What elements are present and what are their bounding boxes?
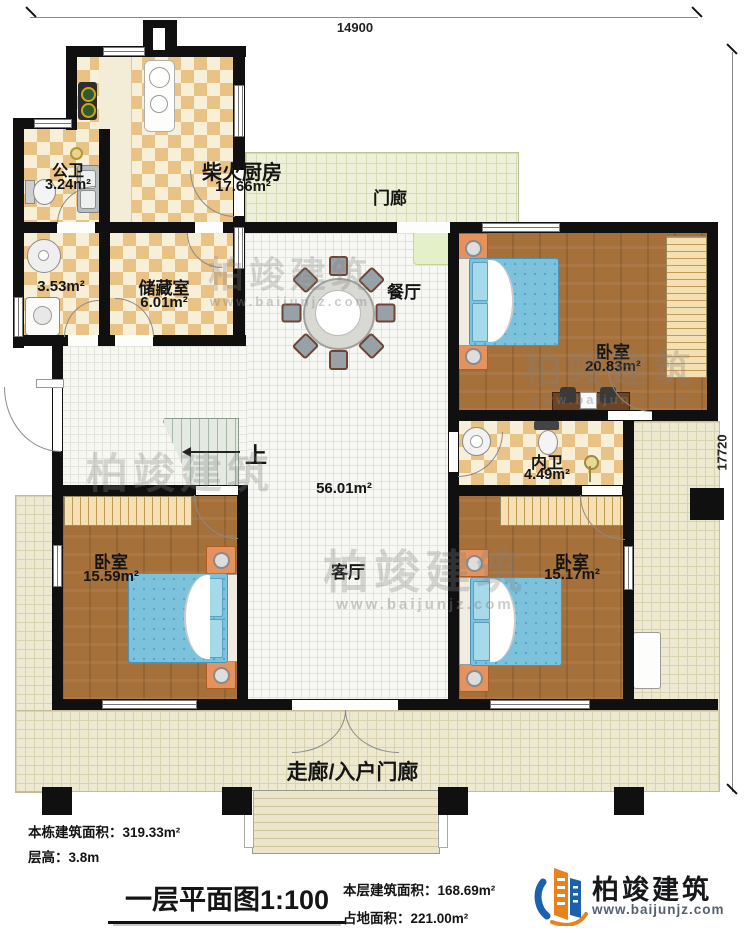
dimension-top-value: 14900 (320, 20, 390, 35)
floor-plan: 柴火厨房 17.66m² 公卫 3.24m² 3.53m² 储藏室 6.01m²… (0, 0, 750, 933)
wall (237, 485, 248, 710)
door-opening (582, 486, 622, 495)
dimension-right-value: 17720 (715, 423, 730, 483)
nightstand (459, 549, 489, 577)
window (482, 223, 560, 232)
area-living: 56.01m² (312, 480, 376, 497)
nightstand (206, 661, 236, 689)
nightstand (206, 546, 236, 574)
shower-stem (589, 466, 591, 482)
dining-chair (376, 304, 396, 323)
label-corridor: 走廊/入户门廊 (265, 756, 440, 786)
entrance-steps (252, 790, 440, 854)
floor-height: 层高：3.8m (28, 845, 180, 870)
wardrobe (64, 496, 192, 526)
window (34, 119, 72, 128)
wall (707, 222, 718, 421)
door-opening (608, 411, 652, 420)
burner (81, 103, 96, 118)
door-opening (292, 700, 398, 710)
pillow (473, 622, 490, 661)
stool (560, 387, 576, 403)
dimension-tick (691, 6, 702, 17)
window (490, 700, 590, 709)
door-opening (449, 432, 458, 472)
area-bedroom-br: 15.17m² (540, 566, 604, 583)
info-left: 本栋建筑面积：319.33m² 层高：3.8m (28, 820, 180, 870)
terrace-bench (633, 632, 661, 689)
area-kitchen: 17.66m² (205, 178, 281, 195)
brand-logo: 柏竣建筑 www.baijunjz.com (534, 862, 734, 928)
chimney-flue (153, 28, 165, 50)
window (14, 297, 23, 337)
entry-mat (413, 229, 451, 265)
window (234, 227, 244, 269)
dining-chair (282, 304, 302, 323)
column (438, 787, 468, 815)
pillow (472, 303, 488, 342)
label-dining: 餐厅 (380, 278, 428, 303)
toilet (534, 421, 559, 430)
info-right: 本层建筑面积：168.69m² 占地面积：221.00m² (343, 877, 495, 933)
burner (81, 87, 96, 102)
total-building-area: 本栋建筑面积：319.33m² (28, 820, 180, 845)
dimension-line-right (732, 52, 733, 792)
area-storage: 6.01m² (134, 294, 194, 311)
door-arc (4, 387, 61, 452)
nightstand (459, 664, 489, 692)
window (53, 545, 62, 587)
window (103, 47, 145, 56)
column (690, 488, 724, 520)
dining-table-top (315, 290, 361, 336)
dresser-mirror (580, 392, 597, 409)
brand-url: www.baijunjz.com (592, 902, 725, 917)
dimension-line-top (30, 17, 698, 18)
door-opening (196, 486, 238, 495)
floor-area: 本层建筑面积：168.69m² (343, 877, 495, 905)
shower-head (584, 455, 599, 470)
wok-ring (150, 95, 168, 113)
column (614, 787, 644, 815)
label-living: 客厅 (322, 558, 374, 583)
pillow (473, 581, 490, 620)
door-opening (397, 222, 450, 233)
pillow (472, 262, 488, 301)
door-leaf (36, 379, 64, 388)
window (624, 546, 633, 590)
wok-ring (149, 67, 170, 88)
stairs-arrow-head (182, 447, 191, 457)
wall (448, 410, 718, 421)
land-area: 占地面积：221.00m² (343, 905, 495, 933)
wardrobe (666, 236, 707, 378)
basin-sink-inner (38, 250, 49, 261)
area-bedroom-tr: 20.83m² (578, 358, 648, 375)
column (222, 787, 252, 815)
door-opening (195, 222, 223, 233)
label-stairs-up: 上 (243, 438, 269, 470)
area-inner-bath: 4.49m² (519, 467, 575, 483)
dining-chair (329, 256, 348, 276)
stairs-arrow-line (190, 451, 240, 453)
washer-drum (33, 306, 52, 325)
area-public-bath: 3.24m² (36, 177, 100, 193)
column (42, 787, 72, 815)
brand-logo-icon (534, 864, 588, 931)
plan-title: 一层平面图1:100 (108, 878, 346, 924)
dimension-tick (25, 6, 36, 17)
label-porch: 门廊 (367, 184, 413, 209)
dining-chair (329, 350, 348, 370)
window (102, 700, 197, 709)
window (234, 85, 244, 137)
area-bedroom-bl: 15.59m² (79, 568, 143, 585)
wall (99, 129, 110, 346)
area-laundry: 3.53m² (30, 278, 92, 295)
